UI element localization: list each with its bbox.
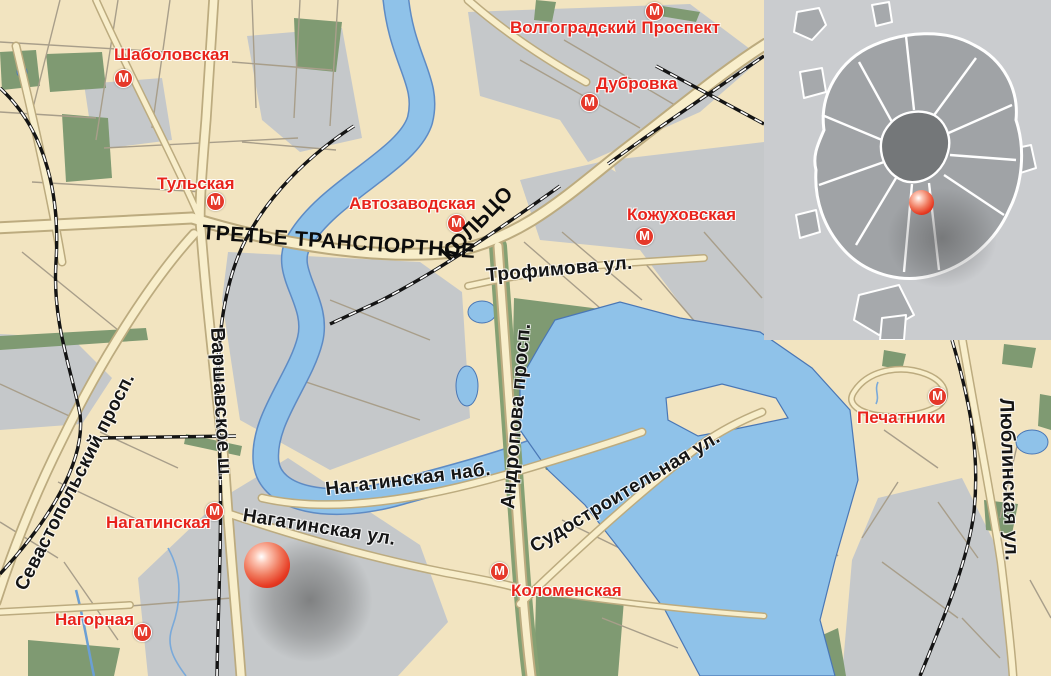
metro-icon-dubrovka[interactable]: М	[580, 93, 599, 112]
station-label-kozhukhovskaya: Кожуховская	[627, 206, 736, 223]
map-canvas[interactable]: М М М М М М М М М М Шаболовская Тульская…	[0, 0, 1051, 676]
station-label-kolomenskaya: Коломенская	[511, 582, 622, 599]
station-label-volgogradsky-prospekt: Волгоградский Проспект	[510, 19, 720, 36]
metro-icon-pechatniki[interactable]: М	[928, 387, 947, 406]
metro-icon-shabolovskaya[interactable]: М	[114, 69, 133, 88]
station-label-shabolovskaya: Шаболовская	[114, 46, 229, 63]
station-label-avtozavodskaya: Автозаводская	[349, 195, 476, 212]
inset-graphics	[764, 0, 1051, 340]
station-label-nagornaya: Нагорная	[55, 611, 134, 628]
location-marker[interactable]	[244, 542, 290, 588]
metro-glyph: М	[494, 563, 505, 578]
inset-marker-shadow	[887, 188, 997, 288]
station-label-nagatinskaya: Нагатинская	[106, 514, 211, 531]
metro-glyph: М	[649, 3, 660, 18]
metro-icon-tulskaya[interactable]: М	[206, 192, 225, 211]
street-label-lublinskaya: Люблинская ул.	[996, 398, 1022, 561]
metro-glyph: М	[118, 70, 129, 85]
inset-location-marker[interactable]	[909, 190, 934, 215]
metro-glyph: М	[137, 624, 148, 639]
station-label-pechatniki: Печатники	[857, 409, 946, 426]
inset-overview-map[interactable]	[764, 0, 1051, 340]
metro-icon-kozhukhovskaya[interactable]: М	[635, 227, 654, 246]
metro-glyph: М	[210, 193, 221, 208]
station-label-dubrovka: Дубровка	[596, 75, 677, 92]
metro-icon-kolomenskaya[interactable]: М	[490, 562, 509, 581]
metro-glyph: М	[639, 228, 650, 243]
station-label-tulskaya: Тульская	[157, 175, 235, 192]
metro-glyph: М	[584, 94, 595, 109]
metro-icon-nagornaya[interactable]: М	[133, 623, 152, 642]
metro-glyph: М	[932, 388, 943, 403]
